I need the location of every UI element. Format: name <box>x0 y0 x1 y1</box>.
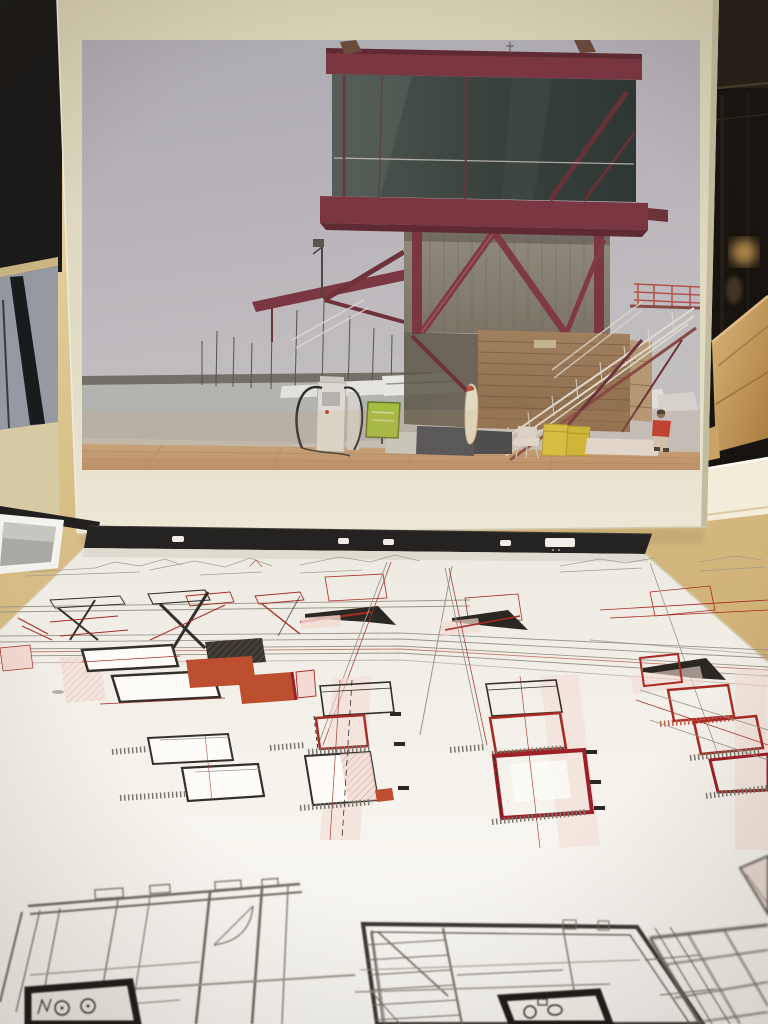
wet-room-center <box>502 992 610 1024</box>
exhibition-scene <box>0 0 768 1024</box>
wet-room-left <box>28 982 138 1024</box>
architectural-drawings-sheet <box>0 0 768 1024</box>
